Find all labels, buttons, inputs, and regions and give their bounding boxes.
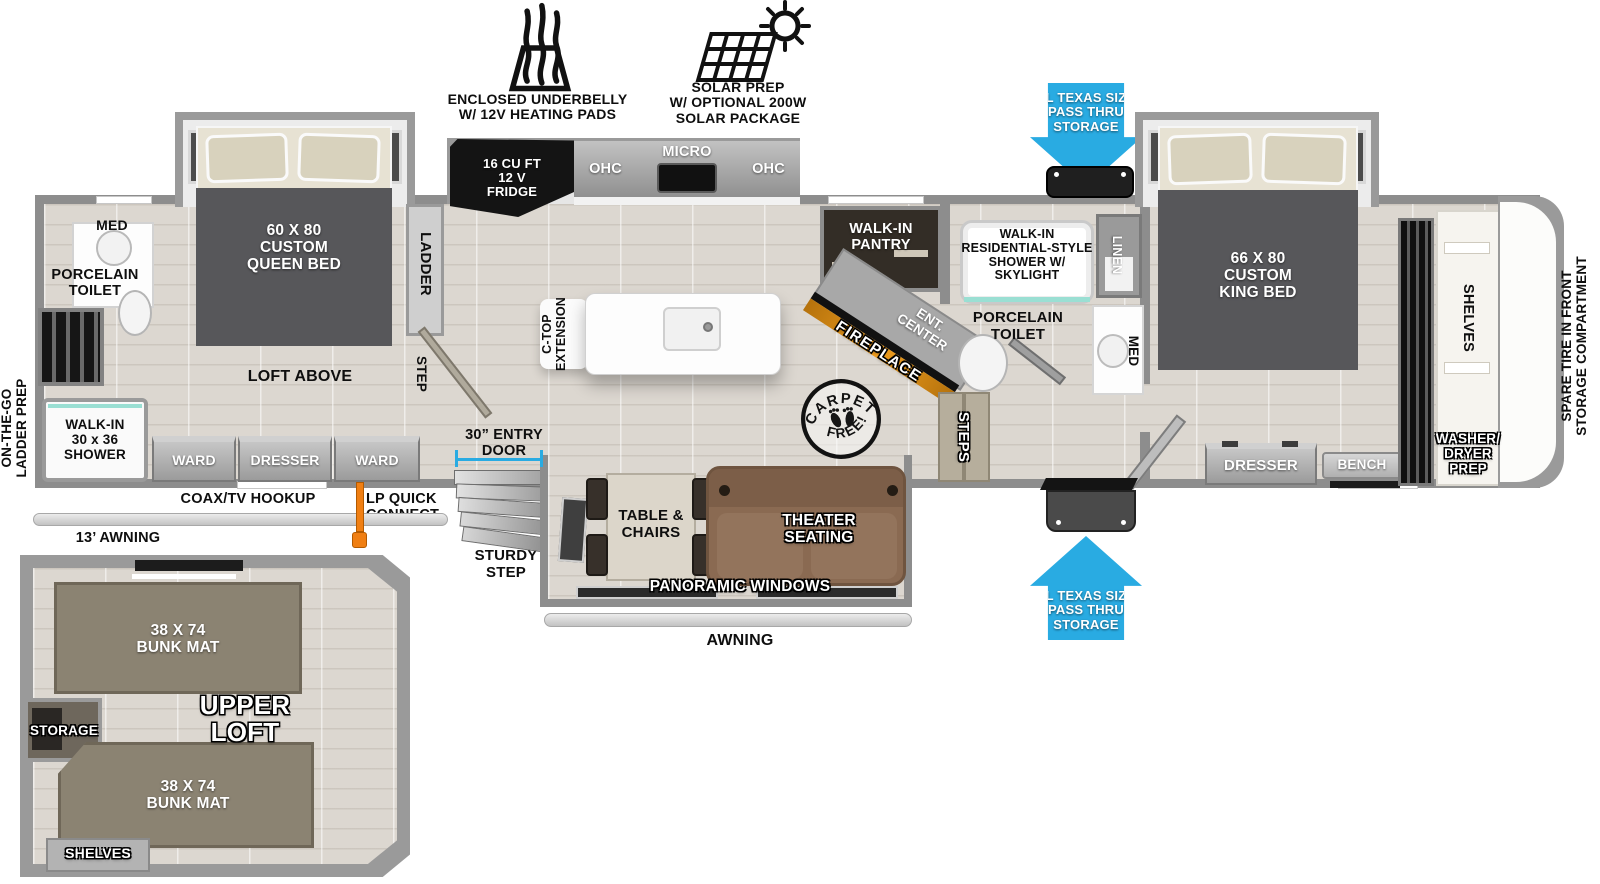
front-awning-rail [544,613,912,627]
dresser-handle [1282,441,1298,447]
step-tread [454,470,548,485]
lp-connector [352,532,367,548]
ohc-left: OHC [574,141,637,199]
front-shelves-label: SHELVES [1459,263,1475,373]
island-faucet [703,322,713,332]
ladder-prep-label: ON-THE-GO LADDER PREP [0,353,32,503]
rear-ward-right-label: WARD [355,453,399,468]
rear-awning-rail [33,513,448,526]
sofa-cupholder [887,485,898,496]
sofa-backrest [709,469,903,507]
king-pillow-left [1167,133,1253,186]
entry-door-measure [455,458,543,461]
pass-thru-top-label: XL TEXAS SIZE PASS THRU STORAGE [1037,83,1135,134]
entry-door-measure-tick [540,450,543,467]
underbelly-label: ENCLOSED UNDERBELLY W/ 12V HEATING PADS [425,92,650,123]
spare-tire-label: SPARE TIRE IN FRONT STORAGE COMPARTMENT [1560,230,1594,462]
loft-above-label: LOFT ABOVE [220,368,380,386]
solar-prep-icon [693,0,813,88]
screw [1121,520,1126,525]
mid-med-label: MED [1126,321,1140,381]
loft-hatch [135,560,243,571]
microwave: MICRO [637,141,737,199]
window [828,196,924,204]
rear-med-label: MED [82,218,142,233]
pass-thru-hatch-mat [1040,478,1138,490]
mid-toilet-label: PORCELAIN TOILET [958,310,1078,343]
queen-bed-label: 60 X 80 CUSTOM QUEEN BED [214,222,374,273]
loft-storage-label: STORAGE [24,724,104,739]
awning-label: AWNING [680,632,800,650]
queen-pillow-right [297,133,381,184]
sofa-cupholder [719,485,730,496]
pass-thru-door-top [1046,166,1134,198]
panoramic-windows-label: PANORAMIC WINDOWS [620,578,860,595]
ohc-right: OHC [737,141,800,199]
entry-door-measure-tick [455,450,458,467]
rear-ward-left: WARD [152,436,236,482]
solar-prep-label: SOLAR PREP W/ OPTIONAL 200W SOLAR PACKAG… [648,80,828,126]
mid-shower-glass [964,297,1090,302]
entry-door-label: 30” ENTRY DOOR [448,428,560,460]
carpet-free-badge: CARPET FREE! [790,368,892,470]
rear-ward-left-label: WARD [172,453,216,468]
bench-label: BENCH [1337,458,1386,473]
micro-label: MICRO [662,144,711,160]
rear-dresser: DRESSER [238,436,332,482]
screw [1121,172,1126,177]
loft-shelves-label: SHELVES [48,846,148,861]
rear-bath-sink [96,230,132,266]
mid-shower-label: WALK-IN RESIDENTIAL-STYLE SHOWER W/ SKYL… [958,228,1096,283]
washer-dryer-label: WASHER/ DRYER PREP [1420,432,1516,477]
front-dresser: DRESSER [1205,443,1317,485]
bench: BENCH [1322,452,1402,479]
fridge-label: 16 CU FT 12 V FRIDGE [483,157,541,200]
pass-thru-bottom-label: XL TEXAS SIZE PASS THRU STORAGE [1037,589,1135,640]
rear-toilet-label: PORCELAIN TOILET [40,268,150,300]
ctop-extension-label: C-TOP EXTENSION [541,282,571,386]
screw [1054,172,1059,177]
shower-glass-edge [48,404,142,408]
king-bed-label: 66 X 80 CUSTOM KING BED [1178,250,1338,301]
loft-hatch-trim [132,574,236,579]
rv-floorplan: ENCLOSED UNDERBELLY W/ 12V HEATING PADS … [0,0,1600,884]
window [96,196,152,204]
ohc-right-label: OHC [752,162,785,178]
living-tv [558,497,588,563]
queen-pillow-left [205,133,289,184]
pass-thru-arrow-bottom: XL TEXAS SIZE PASS THRU STORAGE [1030,536,1142,640]
dresser-handle [1222,441,1238,447]
screw [1056,520,1061,525]
lp-pipe [356,482,364,532]
bunk-mat-top-label: 38 X 74 BUNK MAT [118,622,238,656]
bunk-mat-bottom-label: 38 X 74 BUNK MAT [128,778,248,812]
microwave-window [657,163,717,193]
rear-ward-right: WARD [334,436,420,482]
rear-closet-slats [38,308,104,386]
pantry-label: WALK-IN PANTRY [828,222,934,254]
pass-thru-door-bottom [1046,490,1136,532]
ohc-left-label: OHC [589,162,622,178]
linen-label: LINEN [1109,219,1123,291]
bench-mat [1330,481,1400,488]
theater-seating-label: THEATER SEATING [760,512,878,546]
ladder-label: LADDER [415,199,433,329]
mid-bath-sink [1097,334,1129,368]
upper-loft-label: UPPER LOFT [175,692,315,747]
heating-pad-icon [488,2,592,94]
table-chairs-label: TABLE & CHAIRS [598,508,704,541]
overhead-cabinet-bar: OHC MICRO OHC [574,141,800,199]
front-dresser-label: DRESSER [1224,458,1298,475]
kitchen-counter-lip [574,197,800,205]
awning-13-label: 13’ AWNING [60,531,176,547]
king-pillow-right [1261,133,1347,186]
coax-label: COAX/TV HOOKUP [168,492,328,508]
entry-steps [452,470,548,550]
step-label: STEP [412,339,428,409]
rear-dresser-label: DRESSER [250,453,319,468]
shelf [1444,242,1490,254]
steps-label: STEPS [953,392,971,482]
window [237,481,327,489]
rear-shower-label: WALK-IN 30 x 36 SHOWER [44,418,146,463]
